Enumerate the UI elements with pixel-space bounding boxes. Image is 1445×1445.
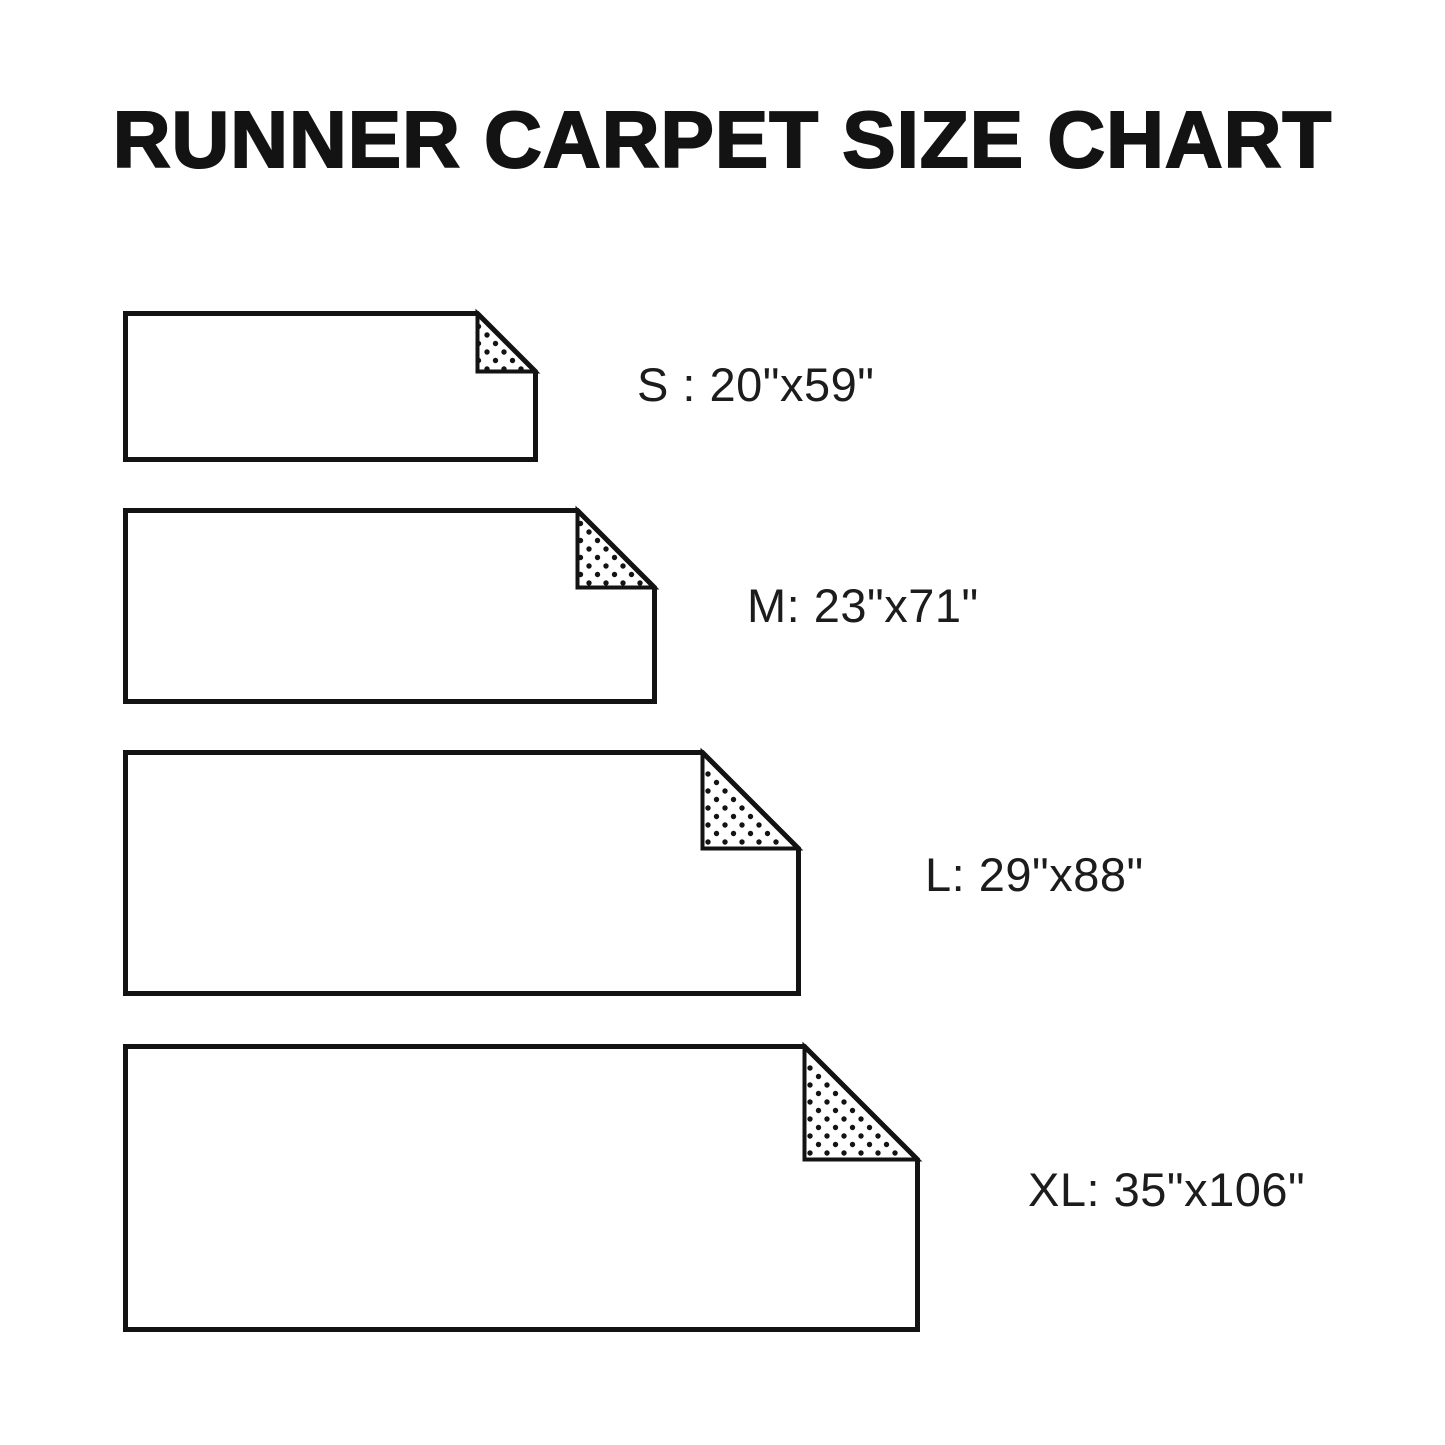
carpet-outline [126, 511, 655, 702]
carpet-outline [126, 314, 536, 460]
carpet-outline [126, 1047, 918, 1330]
runner-carpet-size-chart: RUNNER CARPET SIZE CHART S : 20"x59" M: … [0, 0, 1445, 1445]
size-label-s: S : 20"x59" [637, 361, 874, 408]
carpet-shape-l [123, 750, 801, 996]
size-label-m: M: 23"x71" [747, 582, 979, 629]
folded-corner-icon [703, 753, 799, 849]
carpet-shape-xl [123, 1044, 920, 1332]
carpet-outline [126, 753, 799, 994]
size-label-l: L: 29"x88" [925, 851, 1144, 898]
folded-corner-icon [478, 314, 536, 372]
size-label-xl: XL: 35"x106" [1028, 1166, 1305, 1213]
folded-corner-icon [578, 511, 655, 588]
folded-corner-icon [805, 1047, 918, 1160]
carpet-shape-s [123, 311, 538, 462]
page-title: RUNNER CARPET SIZE CHART [0, 100, 1445, 180]
carpet-shape-m [123, 508, 657, 704]
